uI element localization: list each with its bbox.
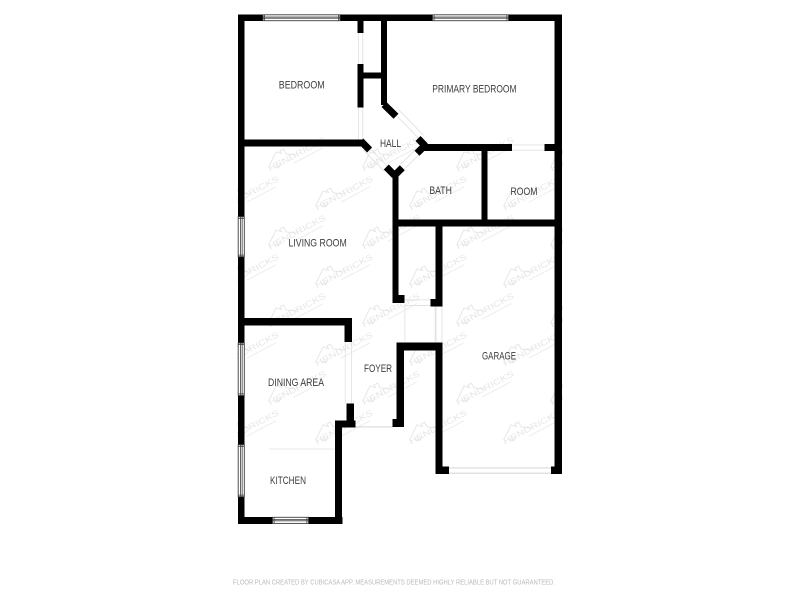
svg-text:BATH: BATH — [429, 185, 452, 197]
svg-text:PRIMARY BEDROOM: PRIMARY BEDROOM — [432, 83, 516, 95]
svg-text:ROOM: ROOM — [511, 186, 538, 198]
svg-text:FLOOR PLAN CREATED BY CUBICASA: FLOOR PLAN CREATED BY CUBICASA APP. MEAS… — [233, 578, 555, 587]
svg-text:GARAGE: GARAGE — [482, 351, 516, 363]
svg-text:BEDROOM: BEDROOM — [279, 79, 325, 91]
svg-text:KITCHEN: KITCHEN — [270, 475, 306, 487]
svg-text:FOYER: FOYER — [364, 363, 392, 375]
svg-text:HALL: HALL — [380, 138, 401, 150]
svg-text:LIVING ROOM: LIVING ROOM — [288, 238, 346, 250]
svg-text:DINING AREA: DINING AREA — [268, 377, 325, 389]
